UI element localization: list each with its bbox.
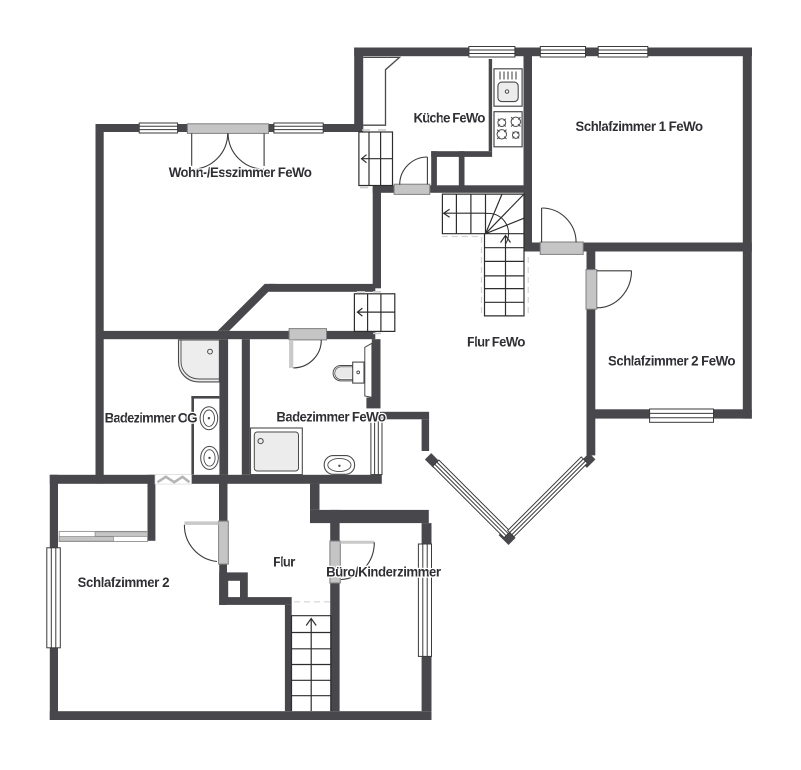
svg-text:Küche FeWo: Küche FeWo xyxy=(414,111,486,126)
svg-text:Büro/Kinderzimmer: Büro/Kinderzimmer xyxy=(326,564,442,579)
svg-text:Wohn-/Esszimmer FeWo: Wohn-/Esszimmer FeWo xyxy=(169,165,312,180)
svg-text:Schlafzimmer 1 FeWo: Schlafzimmer 1 FeWo xyxy=(576,119,704,134)
svg-text:Badezimmer FeWo: Badezimmer FeWo xyxy=(276,409,386,424)
svg-text:Flur: Flur xyxy=(273,555,296,570)
svg-text:Badezimmer OG: Badezimmer OG xyxy=(105,411,198,426)
svg-text:Schlafzimmer 2: Schlafzimmer 2 xyxy=(78,575,170,590)
svg-text:Flur FeWo: Flur FeWo xyxy=(467,334,526,349)
svg-text:Schlafzimmer 2 FeWo: Schlafzimmer 2 FeWo xyxy=(608,354,736,369)
